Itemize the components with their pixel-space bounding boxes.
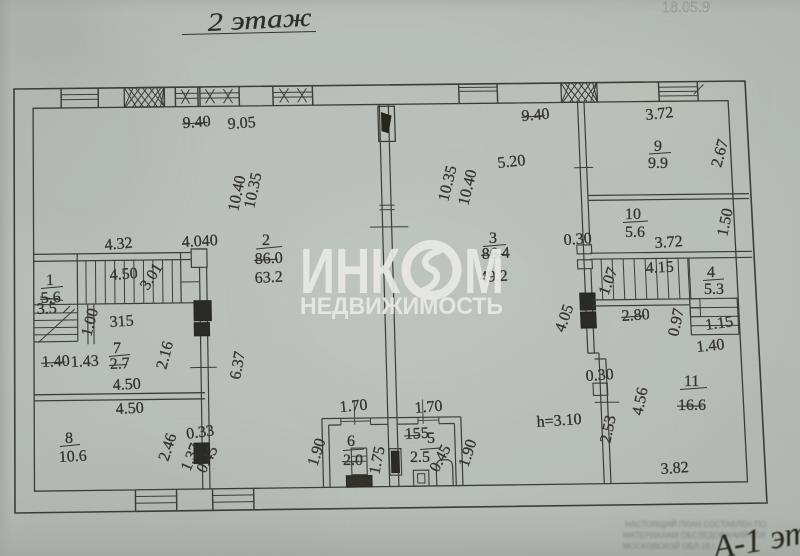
svg-text:2.0: 2.0	[343, 452, 363, 469]
svg-text:0.30: 0.30	[585, 366, 614, 385]
svg-text:63.2: 63.2	[254, 269, 283, 287]
svg-text:16.6: 16.6	[678, 397, 706, 414]
svg-text:9: 9	[654, 138, 662, 155]
svg-text:155: 155	[404, 425, 429, 443]
svg-text:2.5: 2.5	[410, 449, 430, 466]
svg-text:9.05: 9.05	[227, 114, 256, 133]
svg-text:5.20: 5.20	[497, 152, 527, 172]
svg-text:86.0: 86.0	[254, 250, 283, 268]
svg-text:10.6: 10.6	[58, 448, 87, 466]
svg-text:2: 2	[262, 232, 270, 249]
svg-text:10: 10	[625, 206, 641, 223]
svg-text:6: 6	[347, 433, 355, 450]
svg-text:3.72: 3.72	[645, 104, 675, 124]
svg-text:3.72: 3.72	[654, 233, 683, 252]
svg-text:4.50: 4.50	[112, 376, 141, 394]
svg-text:4: 4	[707, 264, 715, 281]
svg-text:4.50: 4.50	[109, 265, 138, 284]
svg-text:1.70: 1.70	[414, 398, 443, 417]
svg-text:5.6: 5.6	[625, 224, 645, 241]
svg-text:НЕДВИЖИМОСТЬ: НЕДВИЖИМОСТЬ	[300, 293, 503, 320]
svg-text:4.50: 4.50	[115, 400, 144, 418]
svg-text:11: 11	[684, 373, 699, 390]
svg-text:4.15: 4.15	[645, 259, 674, 277]
svg-text:3.82: 3.82	[660, 459, 689, 478]
svg-text:9.9: 9.9	[648, 155, 668, 172]
svg-text:3.5: 3.5	[36, 300, 57, 318]
svg-text:5.3: 5.3	[704, 281, 724, 298]
svg-text:0.30: 0.30	[563, 230, 592, 249]
svg-text:315: 315	[109, 312, 134, 331]
svg-text:4.040: 4.040	[181, 232, 218, 251]
svg-text:1.40: 1.40	[696, 336, 726, 356]
svg-text:h=3.10: h=3.10	[536, 411, 582, 431]
svg-text:4.32: 4.32	[104, 235, 133, 254]
svg-text:2.80: 2.80	[621, 306, 650, 325]
svg-text:8: 8	[65, 430, 73, 447]
svg-text:МОСКОВСКОЙ ОБЛ 19 г: МОСКОВСКОЙ ОБЛ 19 г	[623, 542, 715, 551]
svg-text:1.70: 1.70	[339, 397, 368, 416]
svg-text:1: 1	[46, 272, 54, 289]
svg-text:7: 7	[113, 340, 121, 357]
svg-text:1.40: 1.40	[41, 353, 70, 371]
svg-text:9.40: 9.40	[521, 106, 550, 125]
svg-text:1.43: 1.43	[70, 353, 99, 371]
svg-text:18.05.9: 18.05.9	[662, 0, 710, 16]
svg-text:5: 5	[427, 430, 435, 447]
